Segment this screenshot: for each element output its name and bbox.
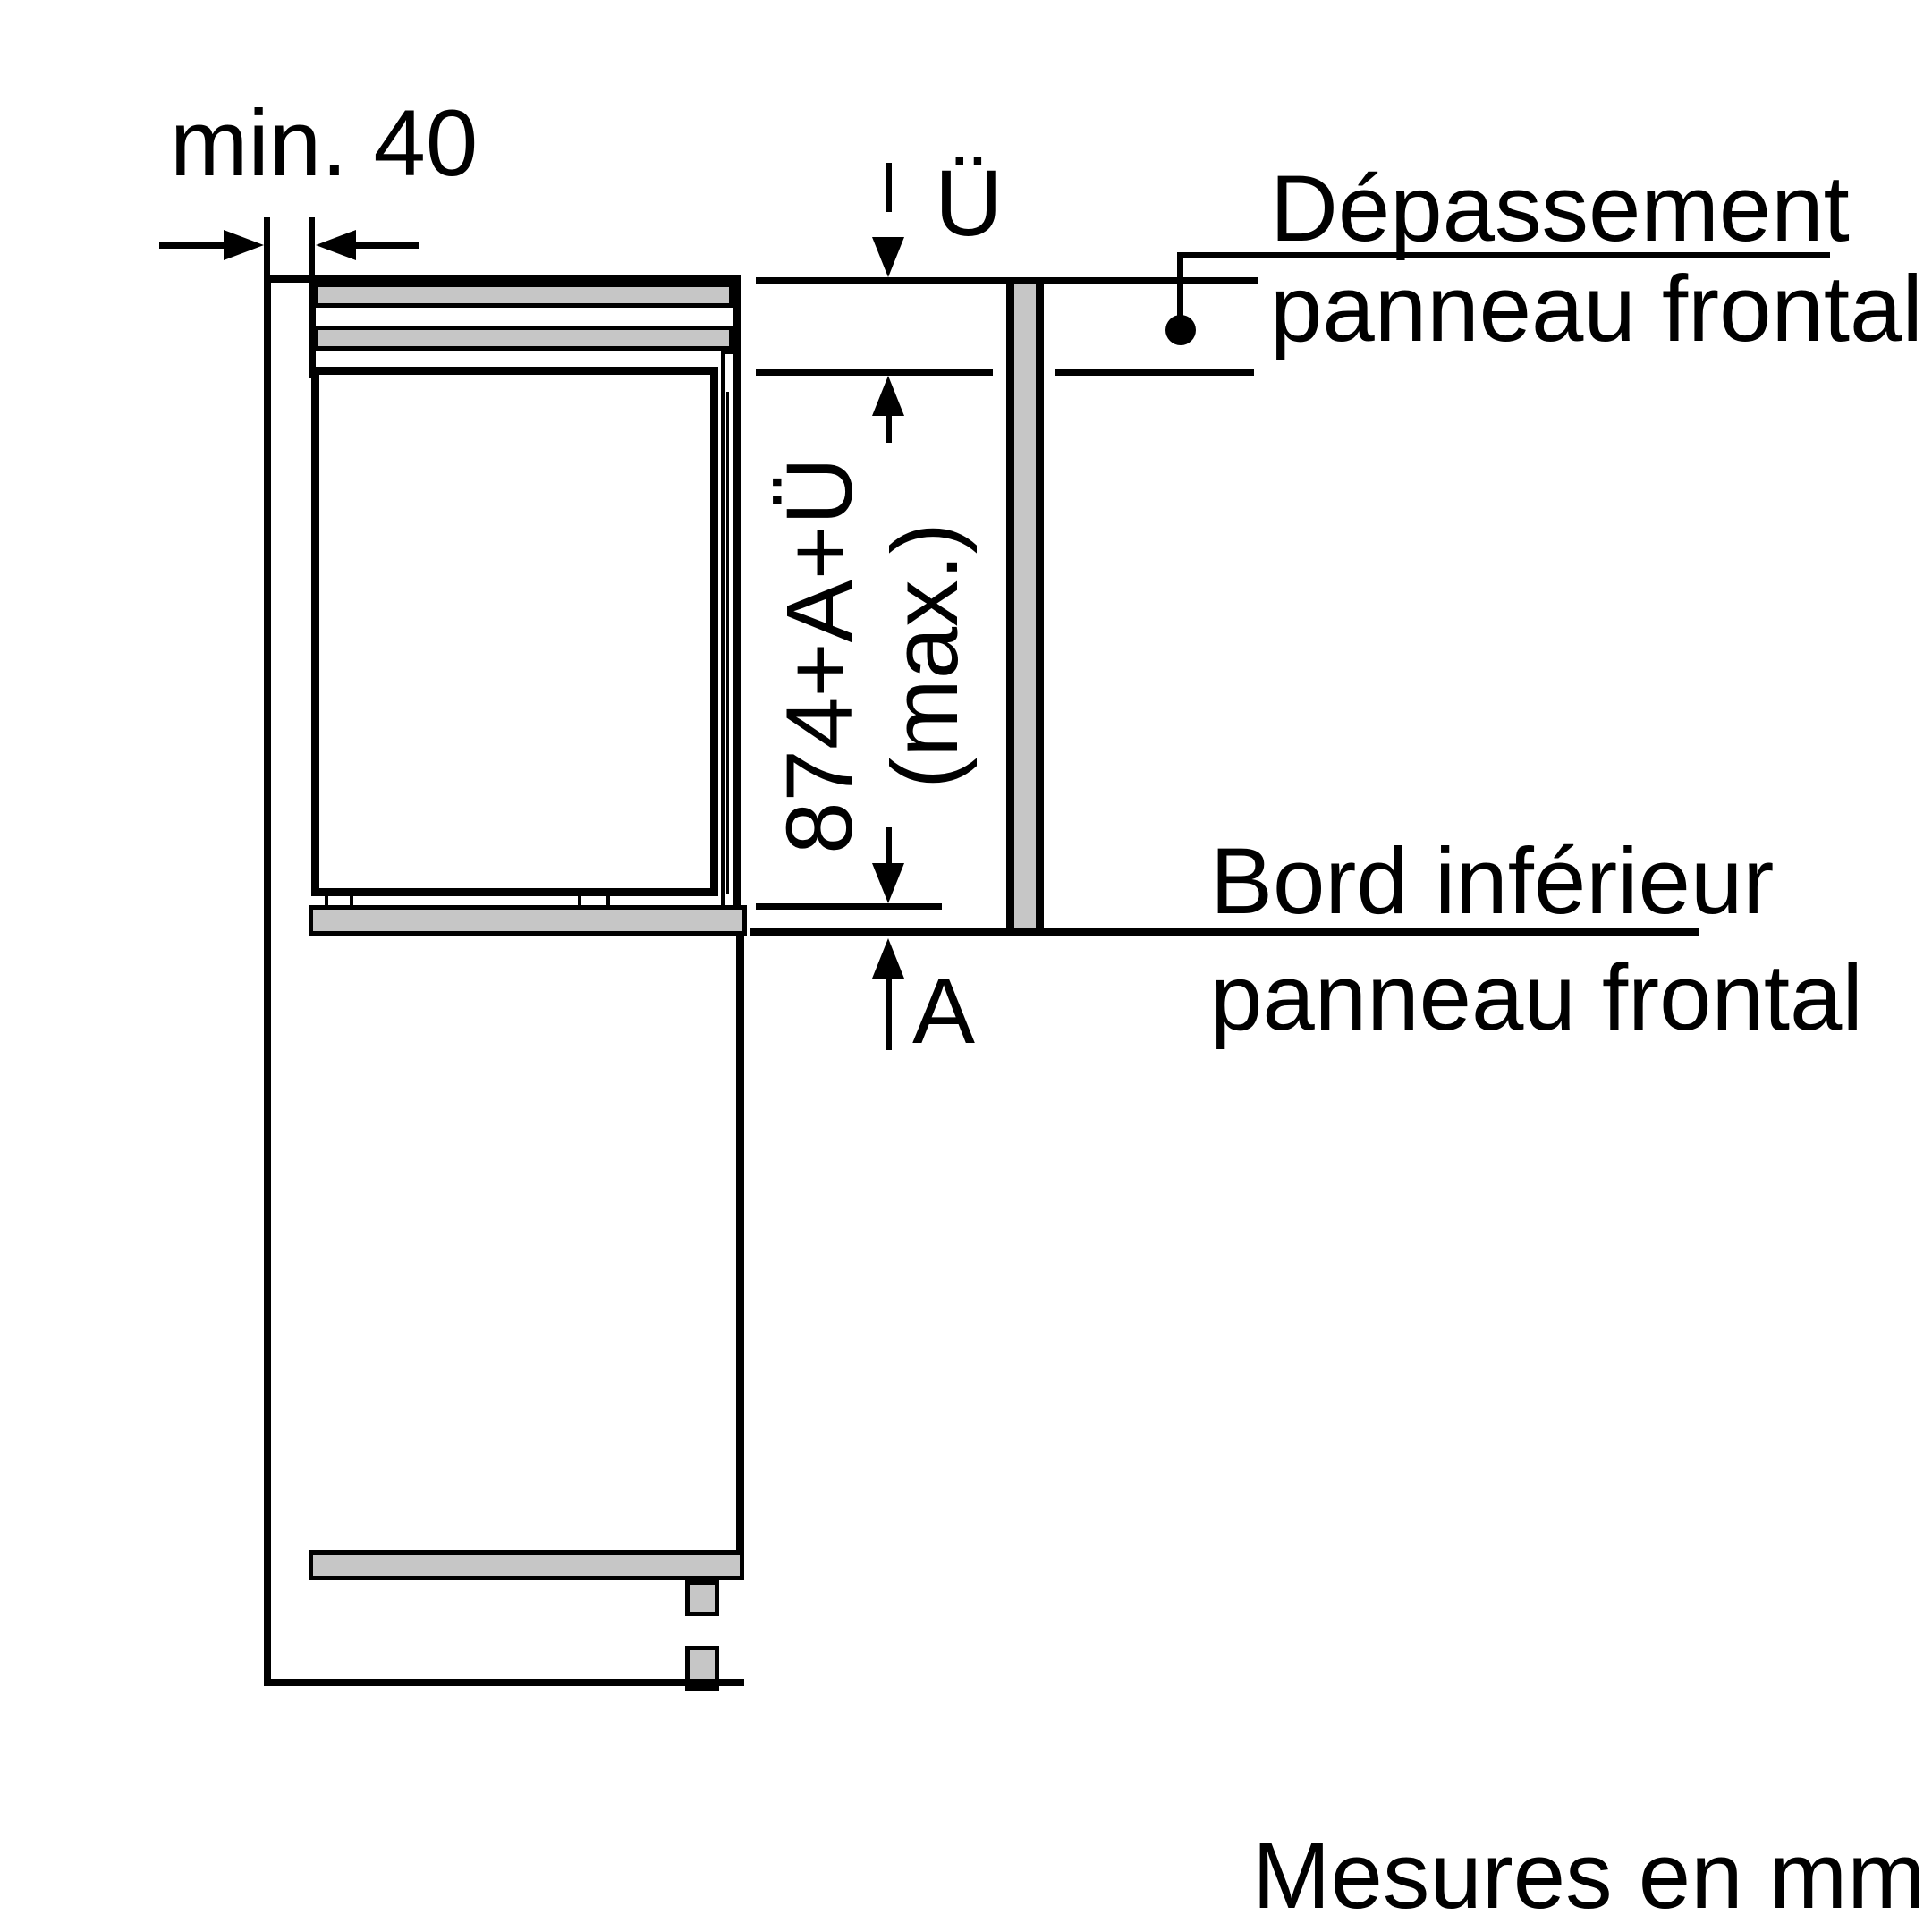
- height-formula-line1: 874+A+Ü: [767, 423, 873, 888]
- lower-edge-label-line2: panneau frontal: [1210, 948, 1863, 1048]
- dimension-tick-left: [264, 217, 270, 275]
- niche-top-reference-line-left: [756, 369, 993, 376]
- bottom-offset-label: A: [912, 962, 975, 1062]
- appliance-installation-diagram: { "diagram": { "type": "built-in fridge …: [0, 0, 1932, 1932]
- overhang-label-line1: Dépassement: [1270, 159, 1850, 259]
- cabinet-side-wall-outer-line: [264, 275, 271, 1686]
- appliance-body: [311, 367, 718, 896]
- niche-front-edge-line: [733, 275, 741, 360]
- leader-dot-icon: [1165, 315, 1196, 345]
- cabinet-bottom-line: [264, 1679, 744, 1686]
- arrow-down-icon: [872, 237, 904, 277]
- plinth-board: [309, 1550, 744, 1580]
- arrow-up-icon: [872, 376, 904, 416]
- arrow-up-icon: [872, 938, 904, 979]
- min-clearance-arrow-left-shaft: [159, 242, 226, 249]
- front-panel-bar: [1006, 279, 1044, 936]
- overhang-symbol-label: Ü: [935, 154, 1003, 254]
- units-note: Mesures en mm: [1252, 1826, 1926, 1927]
- min-clearance-label: min. 40: [170, 94, 478, 194]
- lower-edge-label-line1: Bord inférieur: [1210, 832, 1774, 932]
- niche-top-board-upper: [313, 283, 733, 308]
- arrow-left-icon: [316, 230, 356, 260]
- height-formula-line2: (max.): [873, 423, 979, 888]
- niche-top-reference-line-right: [1055, 369, 1254, 376]
- plinth-foot-upper: [685, 1580, 719, 1616]
- min-clearance-arrow-right-shaft: [356, 242, 419, 249]
- offset-dim-shaft: [885, 979, 892, 1050]
- niche-top-board-lower: [313, 326, 733, 351]
- height-dim-shaft-bottom: [885, 827, 892, 865]
- overhang-leader-line: [1177, 252, 1183, 318]
- overhang-arrow-shaft: [885, 163, 892, 212]
- overhang-label-line2: panneau frontal: [1270, 259, 1923, 360]
- appliance-door-bar: [721, 351, 741, 909]
- height-formula-label: 874+A+Ü (max.): [767, 423, 982, 888]
- niche-bottom-board: [309, 905, 747, 936]
- dimension-tick-right: [309, 217, 315, 275]
- arrow-right-icon: [224, 230, 264, 260]
- appliance-bottom-reference-line: [756, 903, 942, 910]
- arrow-down-icon: [872, 863, 904, 903]
- lower-cabinet-front-line: [736, 936, 744, 1555]
- appliance-door-inner-line: [726, 392, 729, 894]
- niche-top-line: [264, 275, 741, 283]
